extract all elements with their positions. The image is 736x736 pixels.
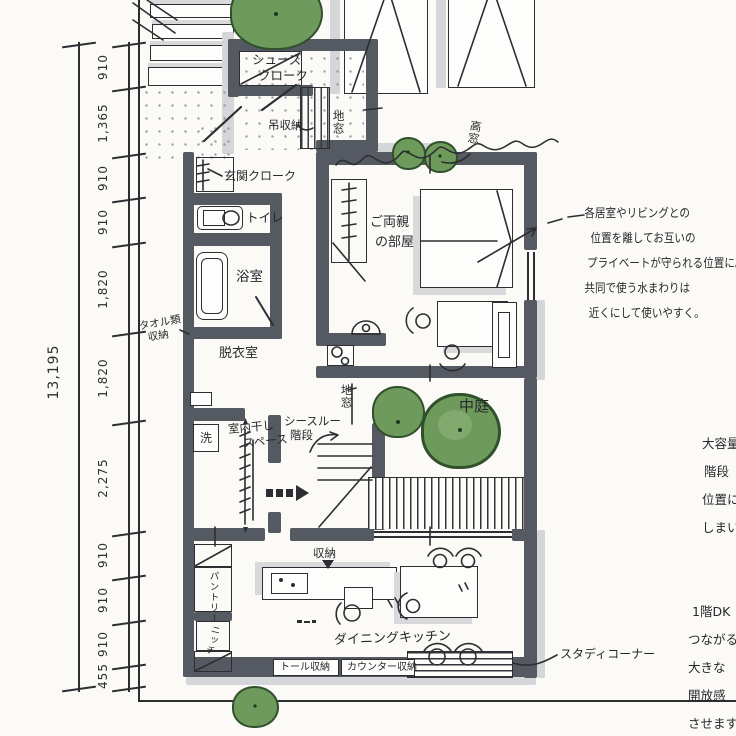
window	[374, 531, 512, 533]
stairs	[310, 432, 372, 527]
dining-kitchen-label: ダイニングキッチン	[334, 630, 451, 648]
window	[533, 252, 535, 300]
dressing-room-label: 脱衣室	[219, 347, 258, 361]
dim-seg-label: 1,820	[96, 338, 112, 418]
note-line: 1階DK	[692, 601, 736, 620]
note-capacity: 大容量 階段 位置に しまい	[702, 433, 736, 536]
note-line: 階段	[704, 461, 736, 480]
note-line: 共同で使う水まわりは	[584, 279, 729, 296]
note-line: 大容量	[702, 433, 736, 452]
toilet-label: トイレ	[246, 211, 284, 225]
hanging-storage-slats	[300, 87, 330, 149]
wall	[366, 39, 378, 151]
washer-label: 洗	[200, 431, 212, 445]
window-seat-inner	[498, 312, 510, 358]
note-line: 位置に	[702, 489, 736, 508]
bathtub-inner	[201, 258, 223, 314]
kitchen-sink	[271, 573, 308, 594]
pantry-cell: パントリー	[194, 567, 232, 612]
parents-room-label-2: の部屋	[375, 236, 414, 250]
see-through-stairs-label-1: シースルー	[284, 415, 341, 428]
dining-table	[400, 566, 478, 618]
note-line: 各居室やリビングとの	[584, 204, 729, 221]
counter-storage-label: カウンター収納	[347, 662, 417, 673]
storage-label: 収納	[313, 547, 336, 560]
shoes-cloak-label-2: クローク	[258, 69, 308, 83]
toilet-cistern	[203, 210, 225, 226]
floor-window-mid-label: 地窓	[340, 384, 353, 409]
note-line: 大きな	[688, 657, 736, 676]
indoor-drying-label-2: スペース	[242, 433, 288, 450]
wall	[183, 408, 245, 421]
wall	[183, 193, 282, 205]
courtyard-label: 中庭	[459, 398, 489, 415]
note-line: プライベートが守られる位置に。	[587, 254, 730, 271]
closet-cell	[194, 651, 232, 672]
entrance-cloak-label: 玄関クローク	[224, 170, 296, 183]
roof-outline	[448, 0, 535, 88]
note-line: つながる	[688, 629, 736, 648]
note-line: しまい	[702, 517, 736, 536]
study-corner-label: スタディコーナー	[560, 648, 655, 661]
note-dk: 1階DK つながる 大きな 開放感 させます	[688, 601, 736, 732]
dressing-cabinet	[190, 392, 212, 406]
wall	[524, 152, 537, 250]
note-line: 開放感	[688, 685, 736, 704]
hanging-storage-label: 吊収納	[268, 119, 303, 132]
tall-storage-label: トール収納	[280, 662, 330, 673]
high-window-label: 高窓	[466, 119, 483, 146]
wood-deck	[368, 477, 524, 529]
marker-shade	[436, 0, 446, 88]
wall	[183, 233, 282, 246]
entry-step	[150, 4, 234, 18]
wall	[183, 327, 282, 339]
dim-seg-label: 2,275	[96, 438, 112, 518]
window	[374, 536, 512, 538]
closet-cell	[194, 544, 232, 567]
courtyard-tree-small	[372, 386, 425, 438]
wall	[183, 528, 194, 677]
marker-shade	[186, 677, 536, 685]
dim-seg-label: 1,820	[96, 249, 112, 329]
marker-shade	[537, 530, 545, 678]
note-line: 位置を離してお互いの	[591, 229, 730, 246]
parents-room-label-1: ご両親	[370, 216, 409, 230]
kitchen-cart	[344, 587, 373, 609]
bush	[392, 137, 426, 170]
dim-total-label: 13,195	[46, 332, 62, 412]
see-through-stairs-label-2: 階段	[290, 429, 313, 442]
dimension-line-segments	[128, 42, 130, 692]
storage-arrow	[322, 560, 334, 569]
towel-storage-label-2: 収納	[147, 329, 170, 344]
wall	[316, 152, 329, 345]
wall	[512, 528, 537, 541]
floor-window-top-label: 地窓	[332, 110, 345, 135]
window	[188, 284, 190, 312]
tall-storage-cabinet: トール収納	[273, 659, 339, 676]
window	[527, 252, 529, 300]
note-privacy: 各居室やリビングとの 位置を離してお互いの プライベートが守られる位置に。 共同…	[580, 204, 730, 321]
marker-shade	[536, 300, 545, 380]
bush	[232, 686, 279, 728]
floor-plan-canvas: 13,195 910 1,365 910 910 1,820 1,820 2,2…	[0, 0, 736, 736]
window	[188, 460, 190, 488]
bed	[420, 189, 513, 288]
wall	[268, 512, 281, 533]
vanity-cabinet	[327, 345, 354, 366]
wall	[290, 528, 374, 541]
dim-seg-label: 455	[96, 636, 112, 716]
flow-arrow	[266, 485, 309, 501]
pantry-label: パントリー	[207, 571, 217, 624]
bathroom-label: 浴室	[236, 270, 263, 285]
dimension-line-total	[78, 42, 80, 692]
shoes-cloak-label-1: シューズ	[252, 53, 301, 67]
site-boundary-bottom	[138, 700, 736, 702]
counter-storage-cabinet: カウンター収納	[341, 659, 415, 676]
note-line: させます	[688, 713, 736, 732]
washing-machine: 洗	[193, 424, 219, 452]
note-line: 近くにして使いやすく。	[589, 304, 730, 321]
wall	[183, 528, 265, 541]
study-counter	[407, 651, 513, 678]
bush	[424, 141, 458, 173]
bedroom-closet	[331, 179, 367, 263]
niche-cell: ニッチ	[196, 621, 230, 651]
